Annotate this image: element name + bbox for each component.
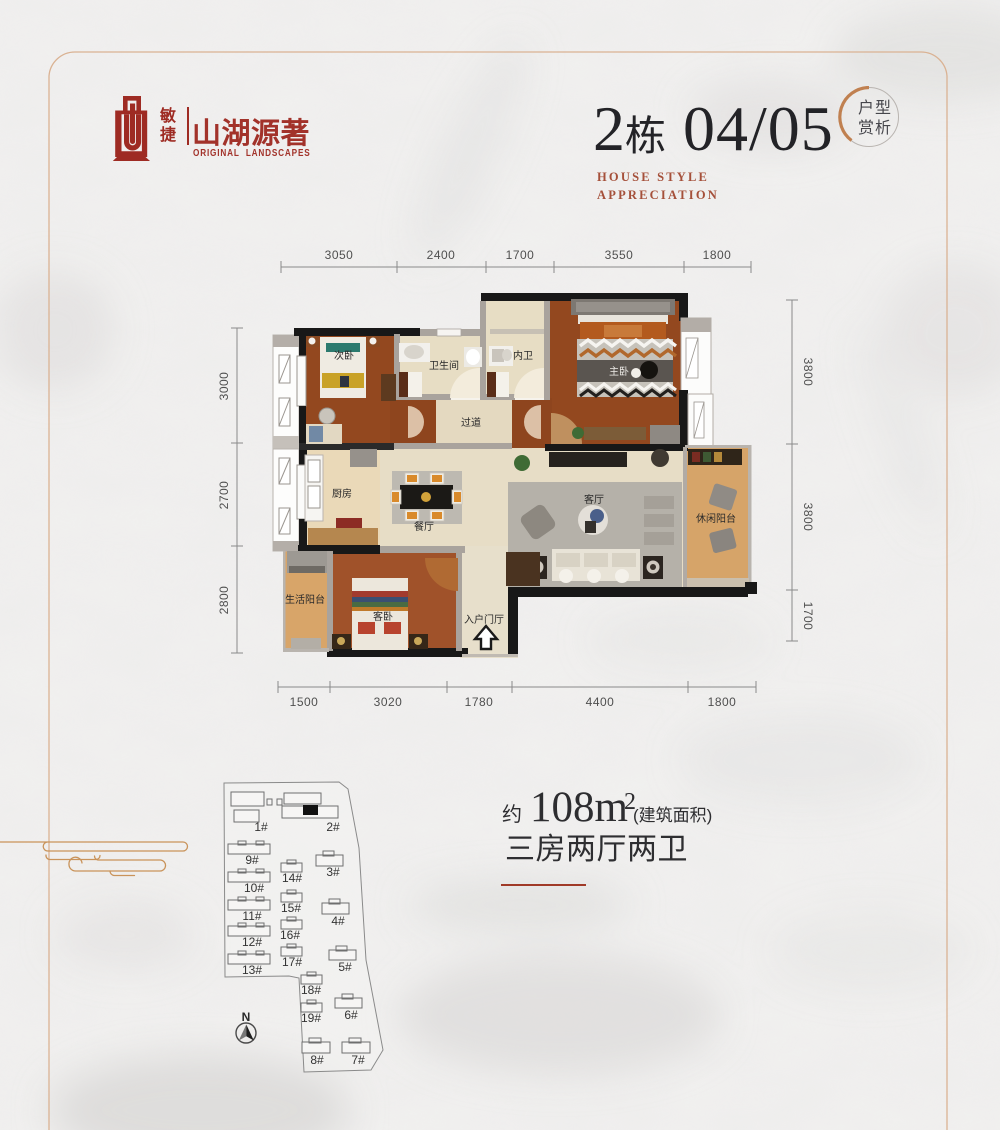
svg-text:18#: 18# <box>301 983 321 997</box>
svg-text:16#: 16# <box>280 928 300 942</box>
svg-text:13#: 13# <box>242 963 262 977</box>
svg-text:6#: 6# <box>344 1008 358 1022</box>
svg-text:17#: 17# <box>282 955 302 969</box>
svg-text:19#: 19# <box>301 1011 321 1025</box>
svg-text:4#: 4# <box>331 914 345 928</box>
svg-text:14#: 14# <box>282 871 302 885</box>
svg-text:1#: 1# <box>254 820 268 834</box>
svg-text:N: N <box>242 1010 251 1024</box>
svg-text:7#: 7# <box>351 1053 365 1067</box>
svg-text:5#: 5# <box>338 960 352 974</box>
svg-text:8#: 8# <box>310 1053 324 1067</box>
svg-text:10#: 10# <box>244 881 264 895</box>
svg-text:15#: 15# <box>281 901 301 915</box>
svg-text:12#: 12# <box>242 935 262 949</box>
svg-text:3#: 3# <box>326 865 340 879</box>
svg-text:11#: 11# <box>242 909 261 923</box>
svg-text:9#: 9# <box>245 853 259 867</box>
svg-text:2#: 2# <box>326 820 340 834</box>
